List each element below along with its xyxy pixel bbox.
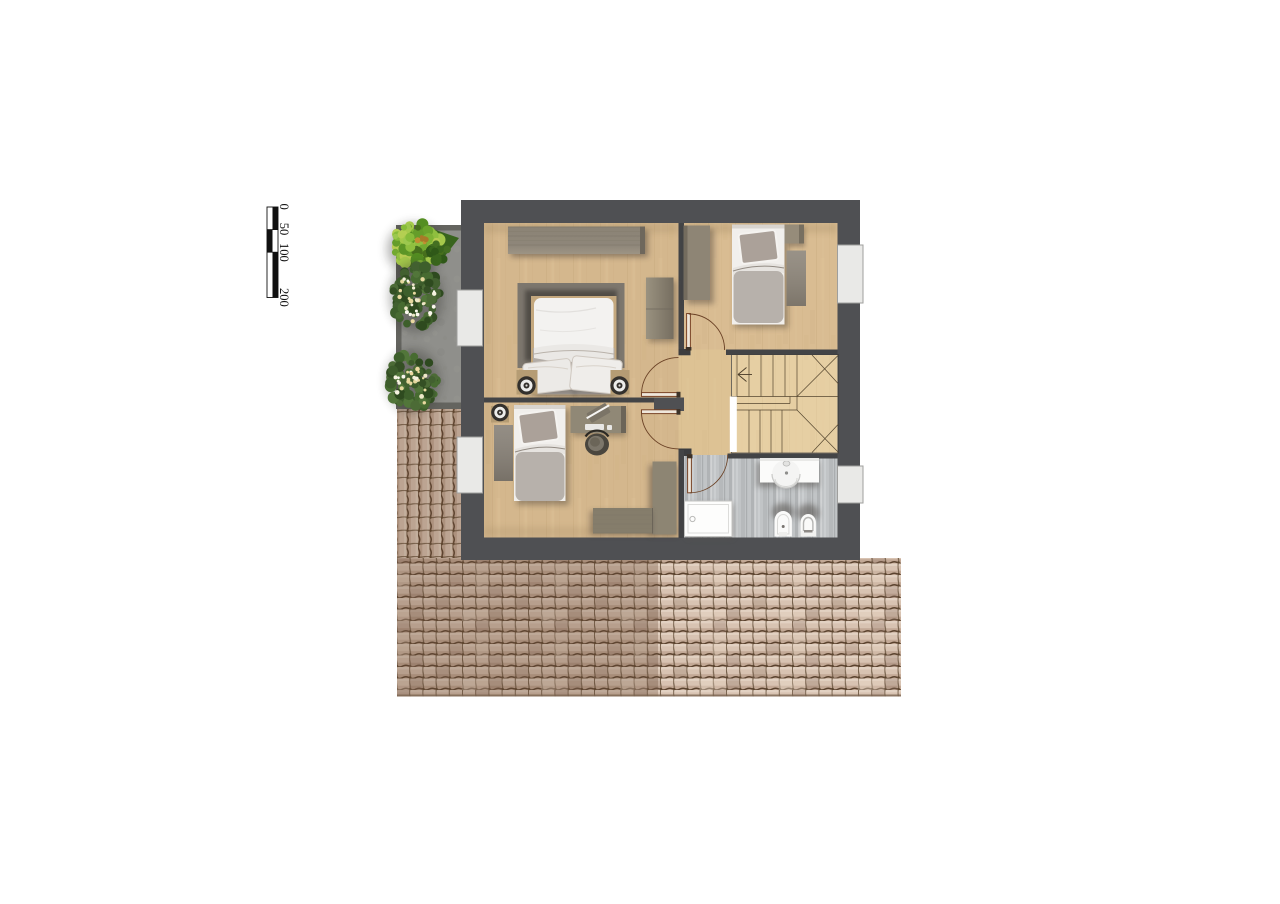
svg-text:50: 50	[277, 223, 291, 236]
svg-text:0: 0	[277, 204, 291, 210]
svg-text:200: 200	[277, 288, 291, 307]
svg-text:100: 100	[277, 243, 291, 262]
